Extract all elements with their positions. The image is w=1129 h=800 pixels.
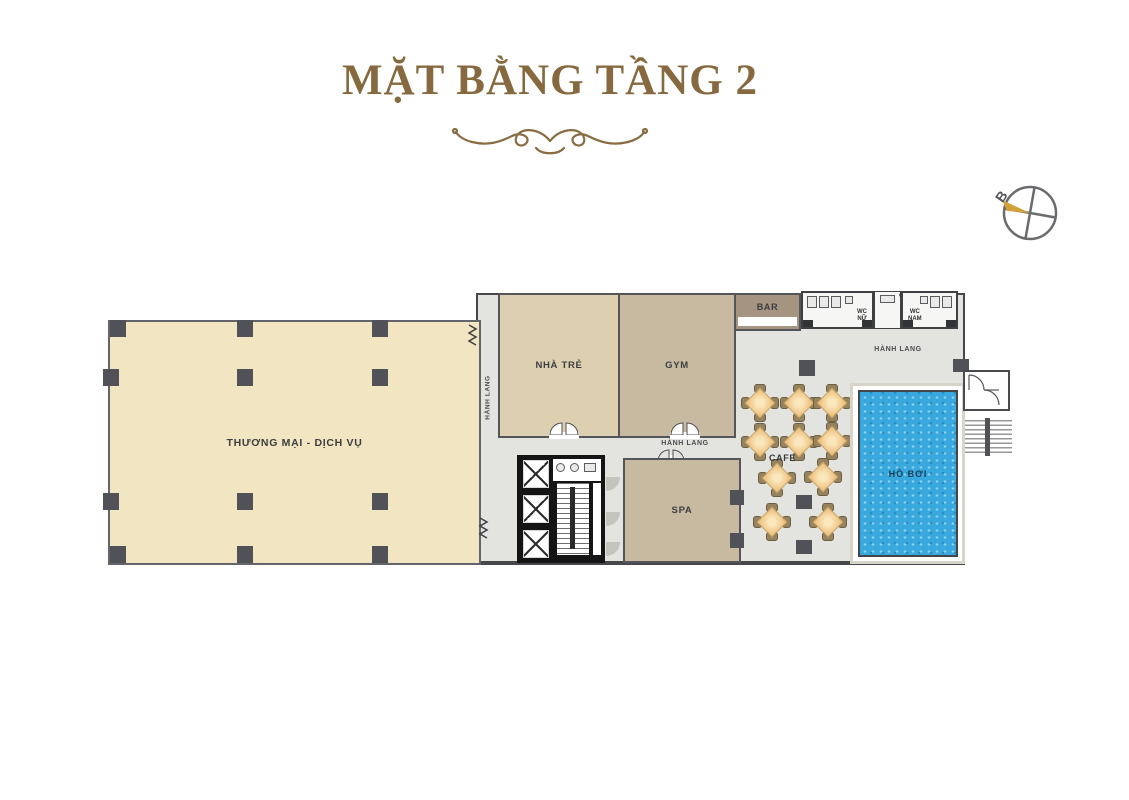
room-gym: GYM [618, 293, 736, 438]
double-door-icon [670, 422, 700, 440]
wc-stall [819, 296, 829, 308]
toilet-fixture [570, 463, 579, 472]
room-label: WCNỮ [857, 309, 867, 323]
wc-stall [807, 296, 817, 308]
room-nha-tre: NHÀ TRẺ [498, 293, 620, 438]
column [372, 546, 388, 563]
elevator-stair-core [517, 455, 605, 563]
toilet-fixture [556, 463, 565, 472]
room-thuong-mai-dich-vu: THƯƠNG MẠI - DỊCH VỤ [108, 320, 481, 565]
wall-stub [803, 320, 813, 327]
room-spa: SPA [623, 458, 741, 563]
floor-plan-page: MẶT BẰNG TẦNG 2 B [0, 0, 1129, 800]
stair-rail [985, 418, 990, 456]
column [237, 369, 253, 386]
area-label-cafe: CAFE [755, 453, 810, 463]
room-wc-nu: WCNỮ [801, 291, 874, 329]
room-bar: BAR [734, 293, 801, 331]
cafe-table [804, 458, 842, 496]
room-wc-nam: WCNAM [901, 291, 958, 329]
door-swing-icon [965, 372, 1008, 409]
cafe-table [813, 422, 851, 460]
corridor-hanh-lang-left: HÀNH LANG [485, 368, 492, 428]
cafe-table [741, 384, 779, 422]
column [237, 493, 253, 510]
column [730, 490, 744, 505]
room-label: THƯƠNG MẠI - DỊCH VỤ [226, 437, 362, 449]
cafe-table [753, 503, 791, 541]
room-label: BAR [757, 302, 779, 312]
wc-stall [942, 296, 952, 308]
column [110, 320, 126, 337]
bar-counter [738, 317, 797, 326]
pool: HỒ BƠI [858, 390, 958, 557]
wc-vestibule [874, 291, 901, 329]
column [372, 493, 388, 510]
accordion-door-icon [478, 517, 489, 546]
room-label: GYM [665, 360, 689, 371]
exterior-staircase-icon [965, 420, 1012, 454]
pool-deck: HỒ BƠI [850, 383, 965, 564]
cafe-table [809, 503, 847, 541]
stair-rail [570, 487, 575, 549]
column [237, 546, 253, 563]
column [372, 369, 388, 386]
wc-stall [930, 296, 940, 308]
column [730, 533, 744, 548]
room-label: SPA [672, 505, 693, 516]
elevator-icon [523, 495, 549, 523]
exterior-vestibule [963, 370, 1010, 411]
column [372, 320, 388, 337]
floor-plan: THƯƠNG MẠI - DỊCH VỤ HÀNH LANG NHÀ TRẺ [0, 0, 1129, 800]
wc-sink [880, 295, 895, 303]
column [799, 360, 815, 376]
elevator-icon [523, 530, 549, 558]
column [237, 320, 253, 337]
wc-sink [920, 296, 928, 304]
accordion-door-icon [467, 324, 478, 353]
corridor-hanh-lang-top: HÀNH LANG [858, 346, 938, 353]
wall-stub [946, 320, 956, 327]
column [103, 369, 119, 386]
elevator-icon [523, 460, 549, 488]
core-passage [593, 483, 601, 555]
sink-fixture [584, 463, 596, 472]
room-label: HỒ BƠI [889, 469, 928, 479]
column [110, 546, 126, 563]
double-door-icon [549, 422, 579, 440]
room-label: NHÀ TRẺ [535, 360, 582, 371]
column [796, 540, 812, 554]
core-lobby [553, 459, 601, 481]
corridor-hanh-lang-mid: HÀNH LANG [650, 440, 720, 447]
wc-sink [845, 296, 853, 304]
wc-stall [831, 296, 841, 308]
column [103, 493, 119, 510]
staircase-icon [557, 483, 589, 555]
room-label: WCNAM [908, 309, 922, 323]
cafe-table [758, 459, 796, 497]
cafe-table [813, 384, 851, 422]
